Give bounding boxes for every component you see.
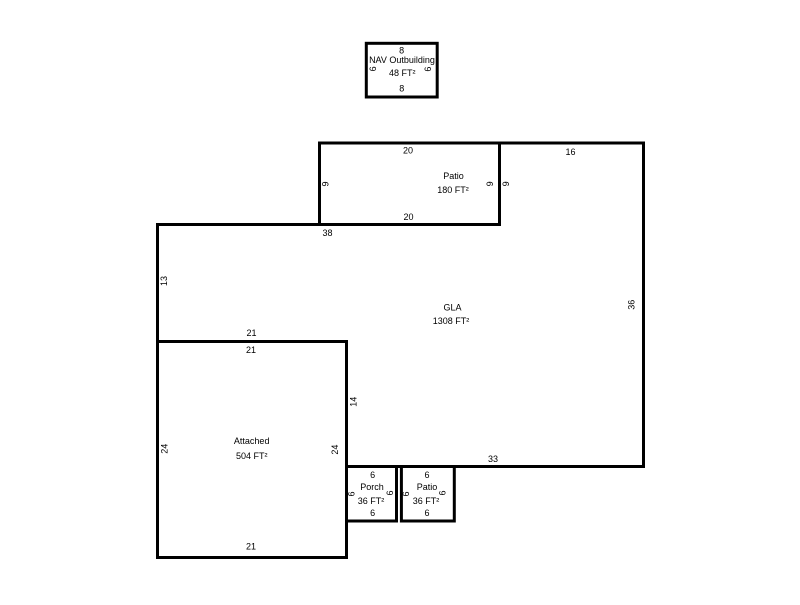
- svg-text:21: 21: [246, 345, 256, 355]
- svg-text:8: 8: [399, 84, 404, 94]
- svg-text:20: 20: [403, 146, 413, 156]
- svg-text:6: 6: [424, 508, 429, 518]
- svg-text:16: 16: [565, 147, 575, 157]
- svg-text:36 FT²: 36 FT²: [413, 496, 440, 506]
- svg-text:6: 6: [437, 490, 447, 495]
- svg-text:6: 6: [385, 490, 395, 495]
- svg-text:48 FT²: 48 FT²: [389, 68, 416, 78]
- svg-text:20: 20: [403, 212, 413, 222]
- svg-text:Patio: Patio: [417, 482, 438, 492]
- svg-text:33: 33: [488, 454, 498, 464]
- svg-text:9: 9: [485, 181, 495, 186]
- svg-text:504 FT²: 504 FT²: [236, 451, 268, 461]
- svg-text:36 FT²: 36 FT²: [358, 496, 385, 506]
- svg-text:1308 FT²: 1308 FT²: [433, 316, 470, 326]
- svg-text:Patio: Patio: [443, 171, 464, 181]
- svg-text:Attached: Attached: [234, 436, 270, 446]
- svg-text:6: 6: [424, 470, 429, 480]
- svg-text:6: 6: [401, 491, 411, 496]
- svg-text:6: 6: [423, 67, 433, 72]
- svg-text:8: 8: [399, 45, 404, 55]
- svg-text:6: 6: [370, 508, 375, 518]
- svg-text:13: 13: [159, 276, 169, 286]
- svg-text:24: 24: [330, 445, 340, 455]
- svg-text:6: 6: [370, 470, 375, 480]
- svg-text:GLA: GLA: [443, 303, 461, 313]
- svg-text:9: 9: [321, 181, 331, 186]
- svg-text:NAV Outbuilding: NAV Outbuilding: [369, 55, 435, 65]
- svg-text:Porch: Porch: [360, 482, 384, 492]
- svg-text:14: 14: [349, 397, 359, 407]
- svg-text:9: 9: [501, 181, 511, 186]
- svg-text:21: 21: [246, 542, 256, 552]
- svg-text:6: 6: [368, 66, 378, 71]
- svg-text:36: 36: [627, 300, 637, 310]
- svg-text:38: 38: [322, 228, 332, 238]
- svg-text:180 FT²: 180 FT²: [437, 185, 469, 195]
- svg-text:24: 24: [160, 444, 170, 454]
- svg-text:21: 21: [246, 328, 256, 338]
- svg-text:6: 6: [347, 491, 357, 496]
